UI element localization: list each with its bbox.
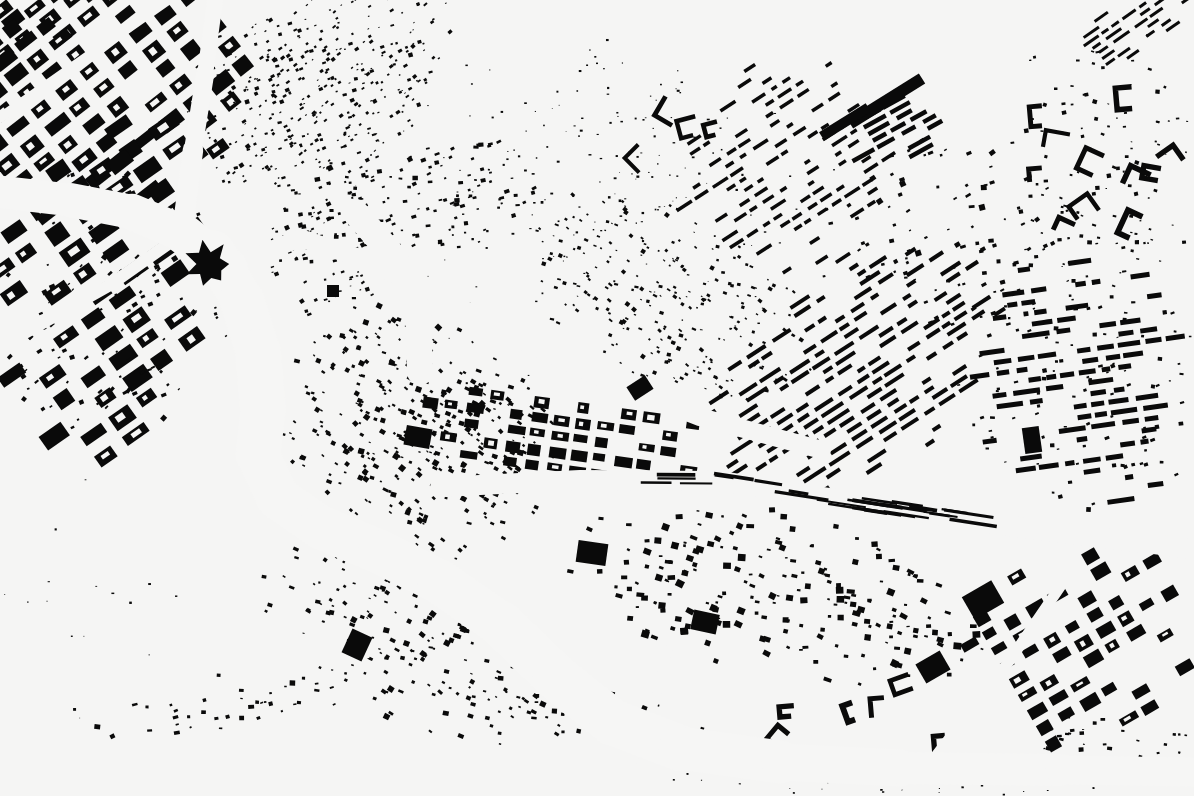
figure-ground-map-canvas [0, 0, 1194, 796]
map-viewport [0, 0, 1194, 796]
